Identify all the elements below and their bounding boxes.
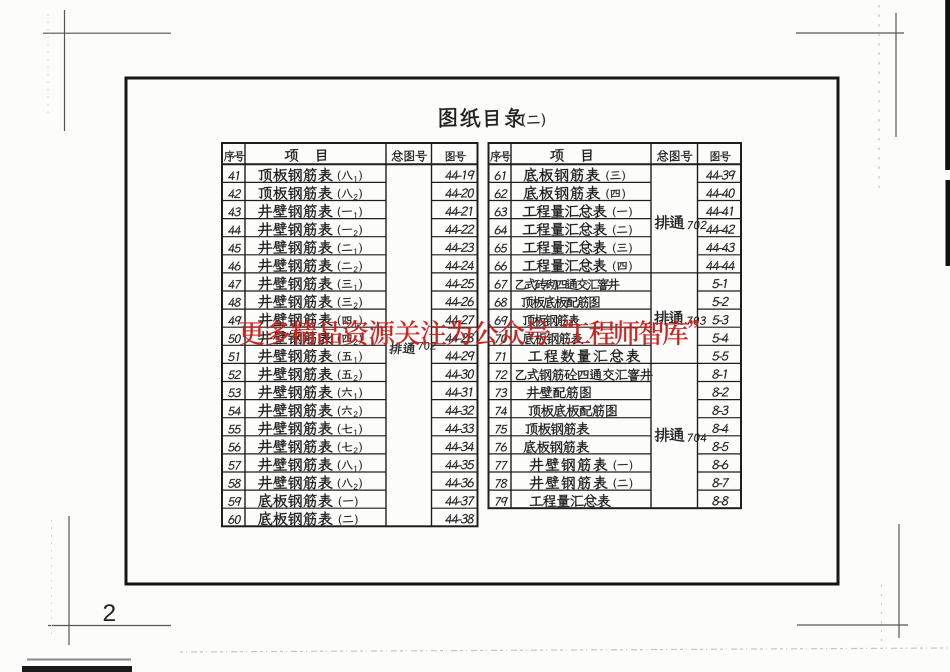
svg-text:2: 2 [103,600,117,627]
